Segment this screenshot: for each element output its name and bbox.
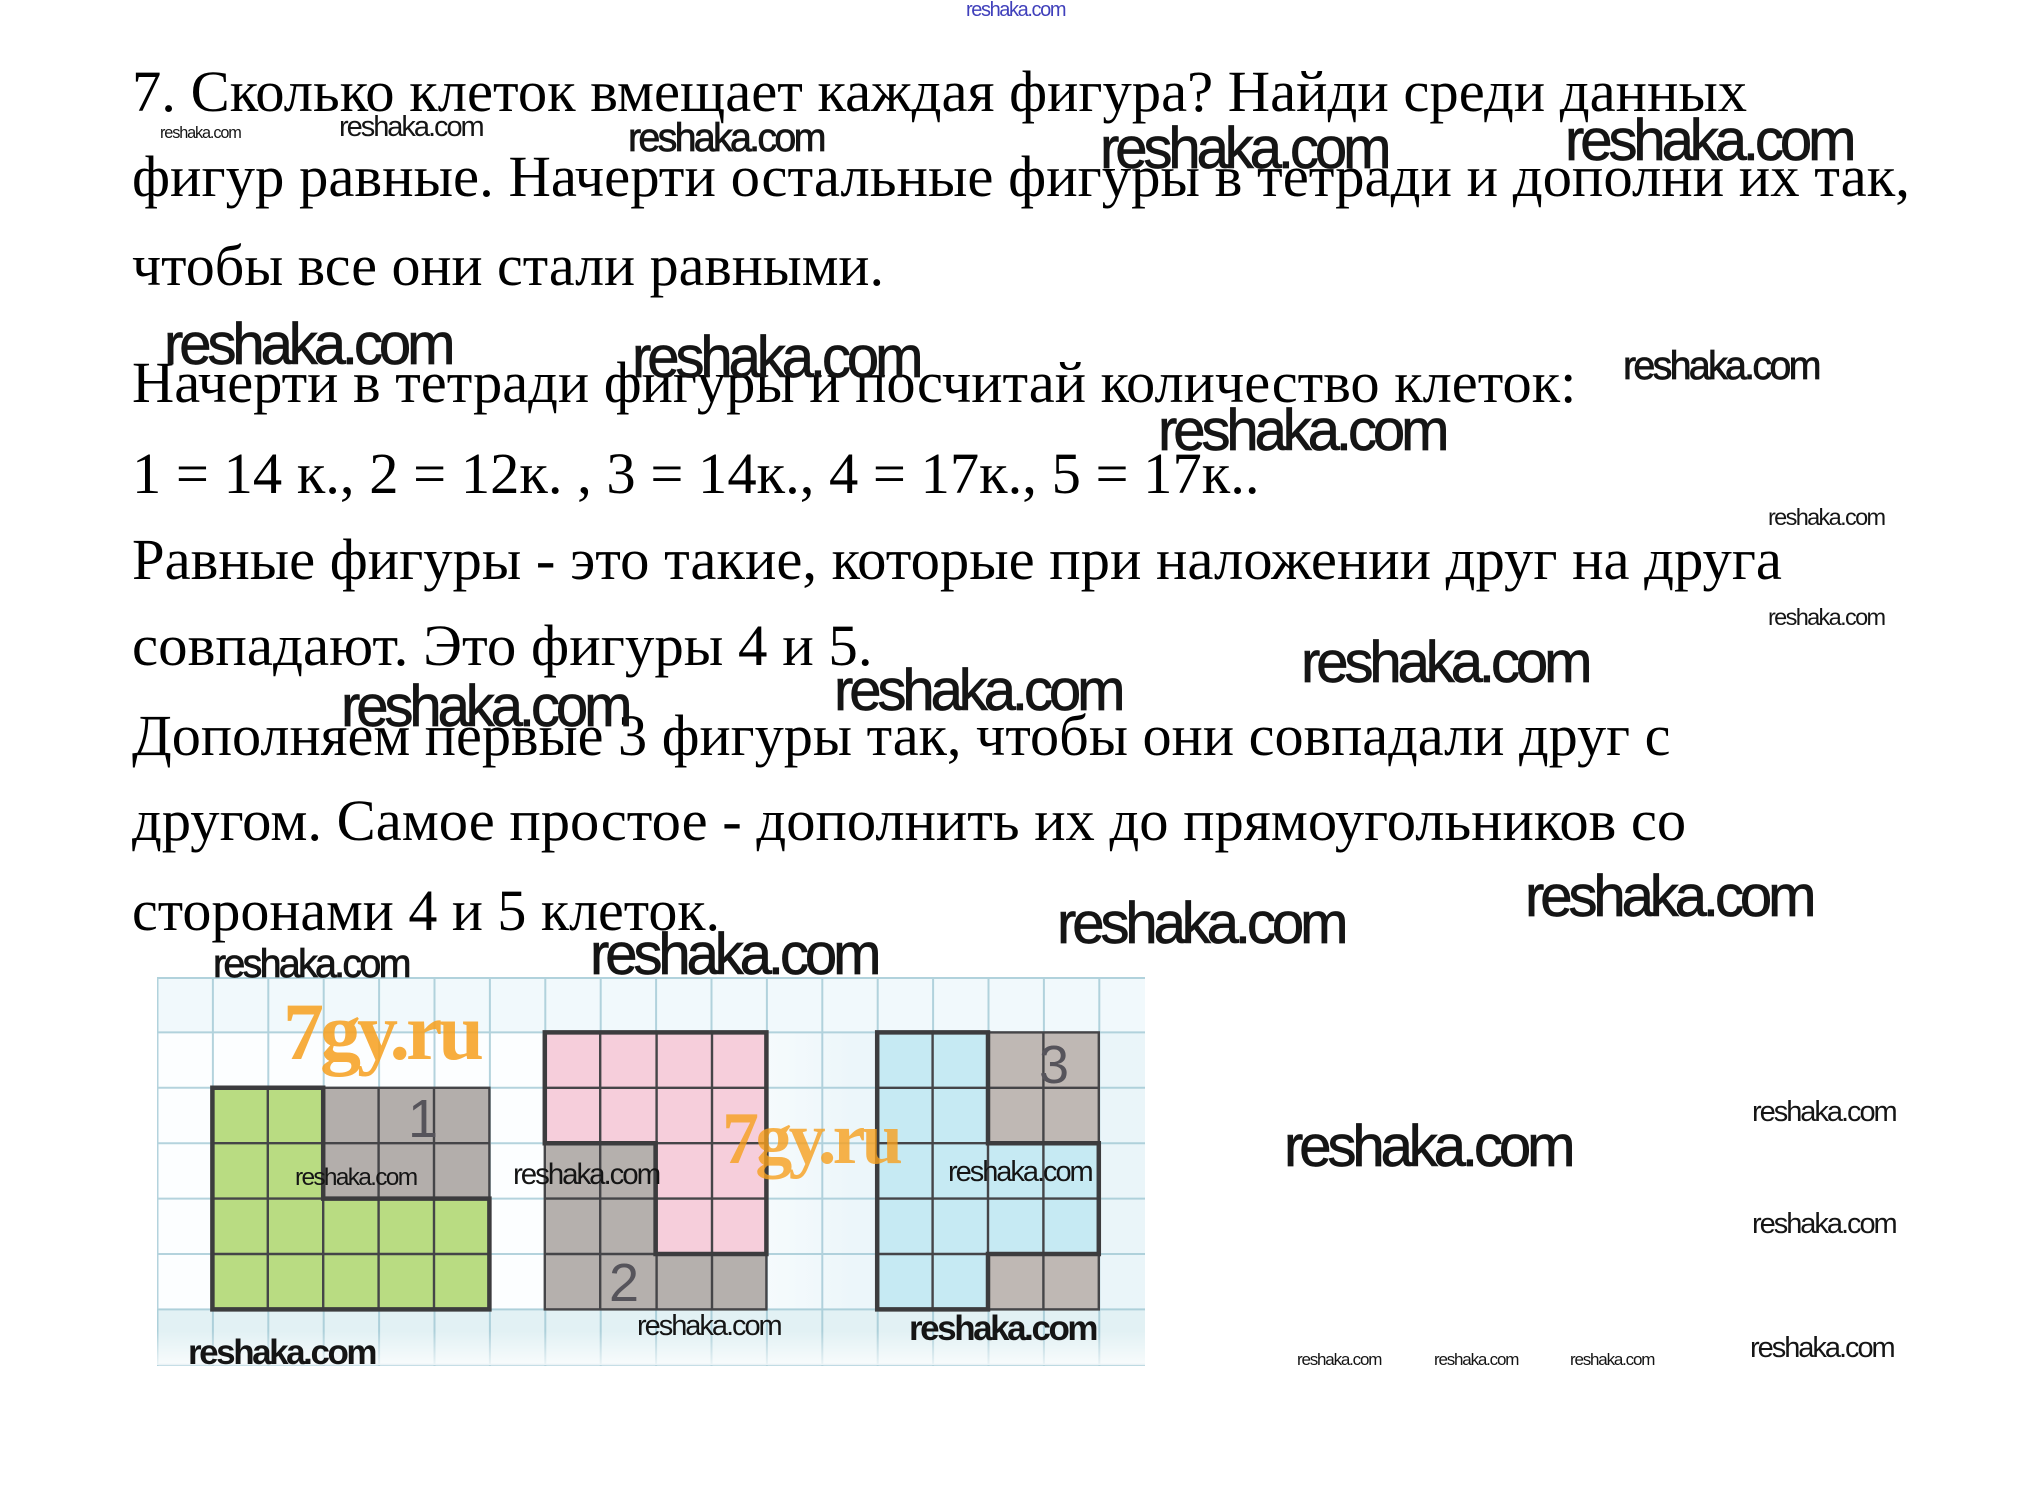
svg-text:7gy.ru: 7gy.ru <box>722 1098 902 1180</box>
svg-text:1: 1 <box>408 1089 438 1149</box>
svg-text:7gy.ru: 7gy.ru <box>283 986 482 1077</box>
svg-text:2: 2 <box>609 1253 639 1313</box>
svg-text:3: 3 <box>1039 1035 1069 1095</box>
